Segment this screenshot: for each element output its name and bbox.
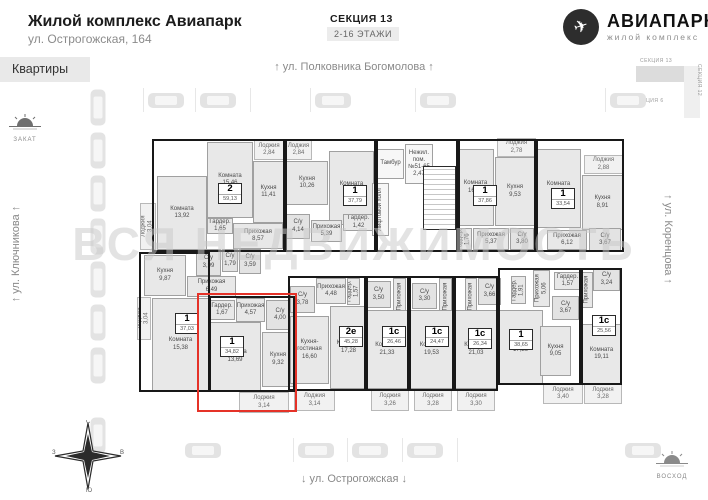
page: Жилой комплекс Авиапарк ул. Острогожская… xyxy=(0,0,708,500)
room: С/у3,59 xyxy=(239,249,261,274)
compass-s: Ю xyxy=(86,488,92,492)
highlighted-apartment-box[interactable] xyxy=(197,293,297,412)
apartment-badge[interactable]: 1с25,56 xyxy=(592,315,616,336)
room: Лоджия3,30 xyxy=(457,390,495,411)
apartment-badge[interactable]: 259,13 xyxy=(218,183,242,204)
apartment-outline[interactable] xyxy=(498,268,581,385)
apartment-outline[interactable] xyxy=(458,139,536,252)
compass-rose: С В Ю З xyxy=(52,420,124,497)
room: С/у1,79 xyxy=(222,249,238,272)
apartment-badge[interactable]: 1с26,46 xyxy=(382,326,406,347)
apartment-badge[interactable]: 133,54 xyxy=(551,188,575,209)
room: Лоджия3,28 xyxy=(584,384,622,404)
room: Лоджия3,40 xyxy=(543,384,583,404)
room: Лоджия3,26 xyxy=(371,390,409,411)
apartment-badge[interactable]: 1с26,34 xyxy=(468,328,492,349)
apartment-outline[interactable] xyxy=(376,139,458,252)
apartment-badge[interactable]: 1с24,47 xyxy=(425,326,449,347)
apartment-badge[interactable]: 137,79 xyxy=(343,185,367,206)
room: Лоджия3,28 xyxy=(414,390,452,411)
apartment-badge[interactable]: 137,86 xyxy=(473,185,497,206)
compass-n: С xyxy=(86,420,91,425)
compass-w: З xyxy=(52,450,56,456)
compass-e: В xyxy=(120,450,124,456)
apartment-badge[interactable]: 138,65 xyxy=(509,329,533,350)
room: Лоджия3,14 xyxy=(294,390,335,411)
compass-icon: С В Ю З xyxy=(52,420,124,492)
apartment-badge[interactable]: 137,03 xyxy=(175,313,199,334)
apartment-outline[interactable] xyxy=(536,139,624,252)
apartment-badge[interactable]: 2е45,28 xyxy=(339,326,363,347)
